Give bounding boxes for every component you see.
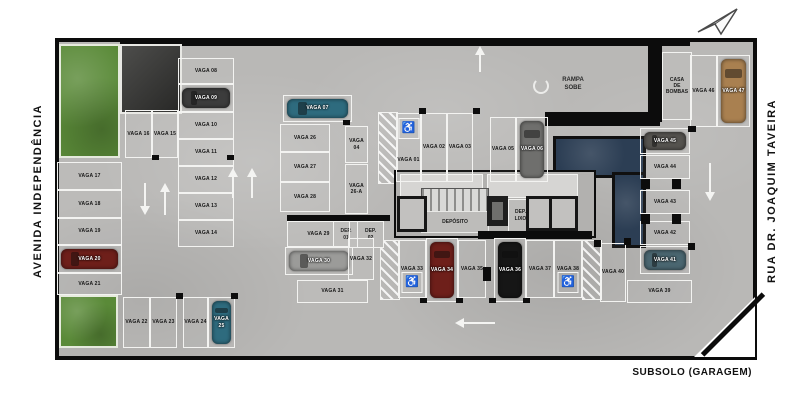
service-shaft: [487, 196, 508, 226]
space-label: VAGA 11: [195, 149, 217, 156]
parking-space: VAGA 39: [627, 280, 692, 303]
pillar: [641, 179, 650, 189]
space-label: VAGA 46: [692, 88, 714, 95]
stairs: [421, 188, 489, 213]
parking-space: VAGA 10: [178, 112, 234, 139]
traffic-arrow-icon: [140, 183, 150, 215]
traffic-arrow-icon: [455, 318, 495, 328]
space-label: VAGA 16: [127, 131, 149, 138]
space-label: VAGA 19: [78, 228, 100, 235]
space-label: VAGA 37: [529, 266, 551, 273]
car: VAGA 30: [289, 251, 349, 271]
space-label: VAGA 17: [78, 173, 100, 180]
parking-space: VAGA 16: [125, 110, 152, 158]
space-label: VAGA 05: [492, 146, 514, 153]
parking-space: VAGA 05: [490, 117, 516, 182]
parking-space: VAGA 28: [280, 182, 330, 212]
pump-room-label: CASA DE BOMBAS: [666, 77, 688, 96]
space-label: VAGA 08: [195, 68, 217, 75]
parking-space: VAGA 03: [447, 113, 473, 182]
space-label: VAGA 30: [308, 258, 330, 264]
parking-space: VAGA 23: [150, 297, 177, 348]
space-label: VAGA 12: [195, 176, 217, 183]
parking-space: VAGA 34: [426, 238, 458, 302]
parking-space: VAGA 22: [123, 297, 150, 348]
pillar: [152, 155, 159, 160]
space-label: VAGA 36: [499, 267, 521, 273]
pillar: [523, 298, 530, 303]
parking-space: VAGA 11: [178, 139, 234, 166]
car: VAGA 09: [182, 88, 230, 108]
ramp-turn-icon: [533, 78, 549, 94]
space-label: VAGA 32: [350, 256, 372, 263]
space-label: VAGA 14: [195, 230, 217, 237]
pillar: [624, 238, 631, 245]
parking-space: VAGA 01♿: [396, 113, 421, 182]
parking-space: VAGA 46: [690, 55, 717, 127]
parking-space: VAGA 02: [421, 113, 447, 182]
elevator-right-2: [549, 196, 578, 231]
space-label: VAGA 04: [346, 138, 367, 151]
car: VAGA 25: [212, 301, 231, 344]
space-label: VAGA 26-A: [346, 183, 367, 196]
space-label: VAGA 40: [602, 269, 624, 276]
pump-room-wall: [648, 42, 662, 122]
parking-space: VAGA 07: [283, 95, 352, 122]
traffic-arrow-icon: [475, 46, 485, 72]
ramp-label: RAMPASOBE: [548, 76, 598, 93]
plan-layer: CASA DE BOMBAS RAMPASOBE DEPÓSITO DEP. L…: [0, 0, 800, 400]
deposito-room: DEPÓSITO: [421, 211, 489, 233]
parking-space: VAGA 41: [640, 246, 690, 274]
space-label: VAGA 24: [184, 319, 206, 326]
parking-space: VAGA 09: [178, 84, 234, 112]
pillar: [343, 120, 350, 125]
trash-room-label: DEP. LIXO: [515, 209, 527, 222]
car: VAGA 06: [520, 121, 544, 178]
pillar: [641, 214, 650, 224]
parking-space: VAGA 36: [494, 238, 526, 302]
parking-space: VAGA 26-A: [345, 164, 368, 214]
parking-space: VAGA 15: [152, 110, 178, 158]
space-label: VAGA 20: [78, 256, 100, 262]
space-label: VAGA 35: [461, 266, 483, 273]
parking-space: VAGA 47: [717, 55, 750, 127]
parking-space: VAGA 14: [178, 220, 234, 247]
deposito-label: DEPÓSITO: [442, 219, 468, 225]
parking-space: VAGA 35: [458, 240, 486, 298]
space-label: VAGA 39: [648, 288, 670, 295]
parking-space: VAGA 08: [178, 58, 234, 84]
car: VAGA 41: [644, 250, 686, 270]
wheelchair-icon: ♿: [558, 272, 579, 293]
space-label: VAGA 07: [306, 105, 328, 111]
space-label: VAGA 42: [654, 230, 676, 237]
parking-space: VAGA 06: [516, 117, 548, 182]
space-label: VAGA 01: [397, 157, 419, 164]
space-label: VAGA 41: [654, 257, 676, 263]
traffic-arrow-icon: [160, 183, 170, 215]
pillar: [420, 298, 427, 303]
grass-patch-bottom-left: [59, 295, 118, 348]
space-label: VAGA 28: [294, 194, 316, 201]
space-label: VAGA 26: [294, 135, 316, 142]
traffic-arrow-icon: [228, 168, 238, 198]
parking-space: VAGA 18: [57, 190, 122, 218]
street-label-left: AVENIDA INDEPENDÊNCIA: [32, 91, 44, 291]
traffic-arrow-icon: [705, 163, 715, 201]
corner-cut: [694, 297, 755, 357]
pillar: [688, 243, 695, 250]
top-wall: [120, 38, 690, 46]
space-label: VAGA 10: [195, 122, 217, 129]
space-label: VAGA 34: [431, 267, 453, 273]
wheelchair-icon: ♿: [402, 272, 423, 293]
space-label: VAGA 02: [423, 144, 445, 151]
page-title: SUBSOLO (GARAGEM): [560, 367, 752, 378]
car-windshield: [502, 251, 519, 258]
parking-space: VAGA 20: [57, 245, 122, 273]
car-windshield: [524, 130, 541, 137]
parking-space: VAGA 30: [285, 247, 353, 275]
pillar: [176, 293, 183, 299]
parking-space: VAGA 27: [280, 152, 330, 182]
car: VAGA 20: [61, 249, 118, 269]
space-label: VAGA 13: [195, 203, 217, 210]
parking-space: VAGA 43: [640, 190, 690, 214]
space-label: VAGA 21: [78, 281, 100, 288]
car-windshield: [215, 308, 228, 314]
space-label: VAGA 03: [449, 144, 471, 151]
parking-space: VAGA 37: [526, 240, 554, 298]
pillar: [473, 108, 480, 114]
pillar: [672, 214, 681, 224]
traffic-arrow-icon: [247, 168, 257, 198]
parking-space: VAGA 40: [600, 243, 626, 302]
car: VAGA 36: [498, 242, 522, 298]
pillar: [489, 298, 496, 303]
space-label: VAGA 29: [307, 231, 329, 238]
pillar: [483, 267, 491, 281]
wheelchair-icon: ♿: [398, 118, 419, 139]
parking-space: VAGA 26: [280, 124, 330, 152]
elevator-left: [397, 196, 427, 232]
car: VAGA 34: [430, 242, 454, 298]
car-windshield: [725, 69, 743, 77]
parking-space: VAGA 12: [178, 166, 234, 193]
space-label: VAGA 22: [125, 319, 147, 326]
pillar: [227, 155, 234, 160]
parking-space: VAGA 04: [345, 126, 368, 163]
space-label: VAGA 09: [195, 95, 217, 101]
space-label: VAGA 45: [654, 138, 676, 144]
pillar: [456, 298, 463, 303]
parking-space: VAGA 19: [57, 218, 122, 245]
parking-space: VAGA 13: [178, 193, 234, 220]
parking-space: VAGA 25: [208, 297, 235, 348]
pillar: [231, 293, 238, 299]
car-windshield: [434, 251, 451, 258]
space-label: VAGA 47: [722, 88, 744, 94]
parking-space: VAGA 21: [57, 273, 122, 295]
floor-plan-page: CASA DE BOMBAS RAMPASOBE DEPÓSITO DEP. L…: [0, 0, 800, 400]
space-label: VAGA 15: [154, 131, 176, 138]
street-label-right: RUA DR. JOAQUIM TAVEIRA: [766, 91, 778, 291]
pillar: [688, 126, 696, 132]
pillar: [672, 179, 681, 189]
space-label: VAGA 06: [521, 146, 543, 152]
parking-space: VAGA 29: [287, 221, 350, 247]
parking-space: VAGA 42: [640, 221, 690, 245]
space-label: VAGA 27: [294, 164, 316, 171]
parking-space: VAGA 32: [348, 238, 374, 280]
space-label: VAGA 18: [78, 201, 100, 208]
space-label: VAGA 25: [212, 316, 231, 329]
pump-room: CASA DE BOMBAS: [662, 52, 692, 120]
hatch-zone-bottom-left: [380, 240, 400, 300]
car: VAGA 45: [644, 132, 686, 150]
pillar: [419, 108, 426, 114]
parking-space: VAGA 31: [297, 280, 368, 303]
pillar: [594, 240, 601, 247]
grass-patch-top-left: [59, 44, 120, 158]
car: VAGA 07: [287, 99, 348, 118]
parking-space: VAGA 38♿: [554, 240, 582, 298]
ramp-wall: [545, 112, 660, 126]
space-label: VAGA 44: [654, 164, 676, 171]
space-label: VAGA 23: [152, 319, 174, 326]
building-footprint: [120, 44, 182, 114]
parking-space: VAGA 24: [183, 297, 208, 348]
parking-space: VAGA 44: [640, 155, 690, 179]
hatch-zone-bottom-right: [582, 240, 602, 300]
north-arrow-icon: [696, 6, 740, 38]
parking-space: VAGA 17: [57, 162, 122, 190]
car: VAGA 47: [721, 59, 746, 123]
space-label: VAGA 31: [321, 288, 343, 295]
parking-space: VAGA 33♿: [398, 240, 426, 298]
parking-space: VAGA 45: [640, 128, 690, 154]
space-label: VAGA 43: [654, 199, 676, 206]
